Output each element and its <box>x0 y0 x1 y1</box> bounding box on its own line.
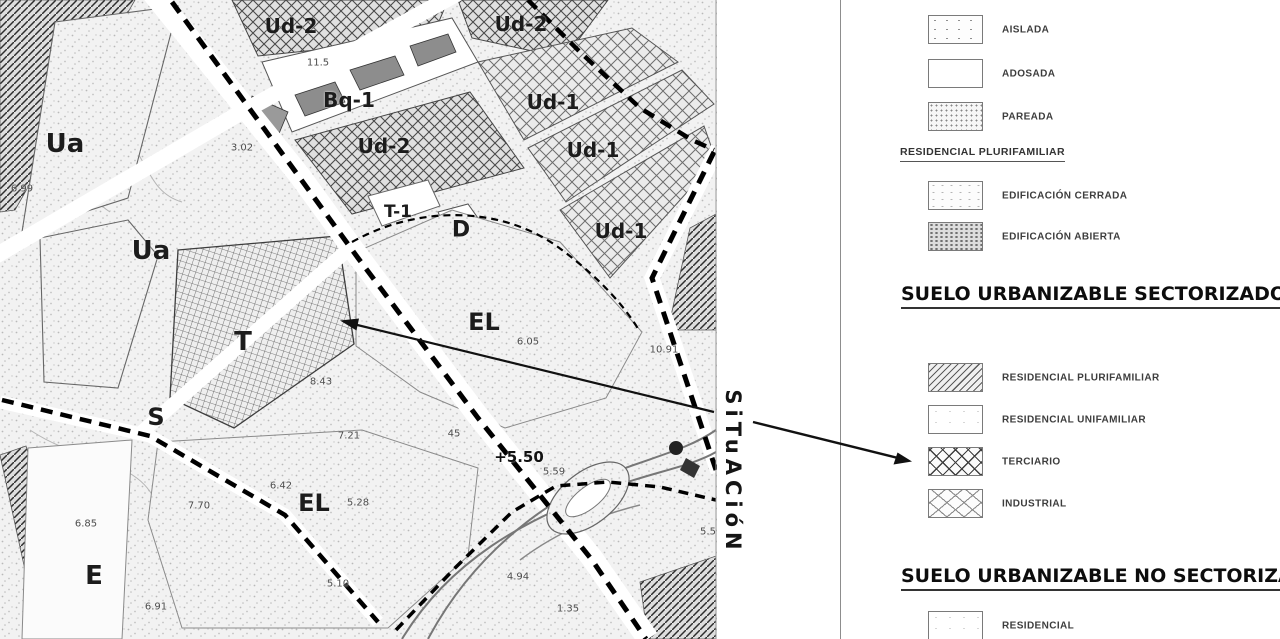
legend-heading-residencial-plurifamiliar: RESIDENCIAL PLURIFAMILIAR <box>900 146 1065 162</box>
legend-swatch-terciario <box>928 447 983 476</box>
legend-swatch-aislada <box>928 15 983 44</box>
legend-label: TERCIARIO <box>1002 457 1061 468</box>
legend-label: PAREADA <box>1002 112 1054 123</box>
legend-label: RESIDENCIAL UNIFAMILIAR <box>1002 415 1146 426</box>
legend-panel: AISLADA ADOSADA PAREADA RESIDENCIAL PLUR… <box>0 0 1280 639</box>
legend-swatch-residencial <box>928 611 983 639</box>
legend-label: AISLADA <box>1002 25 1049 36</box>
legend-swatch-industrial <box>928 489 983 518</box>
legend-swatch-edificacion-cerrada <box>928 181 983 210</box>
planning-sheet: Ua Ud-2 Ud-2 Bq-1 Ud-2 Ud-1 Ud-1 T-1 D U… <box>0 0 1280 639</box>
legend-label: ADOSADA <box>1002 69 1055 80</box>
legend-swatch-residencial-plurifamiliar <box>928 363 983 392</box>
legend-label: EDIFICACIÓN CERRADA <box>1002 191 1127 202</box>
legend-label: RESIDENCIAL <box>1002 621 1074 632</box>
legend-heading-suelo-urbanizable-no-sectorizado: SUELO URBANIZABLE NO SECTORIZADO <box>901 565 1280 591</box>
legend-heading-suelo-urbanizable-sectorizado: SUELO URBANIZABLE SECTORIZADO <box>901 283 1280 309</box>
legend-swatch-adosada <box>928 59 983 88</box>
legend-label: RESIDENCIAL PLURIFAMILIAR <box>1002 373 1160 384</box>
legend-swatch-edificacion-abierta <box>928 222 983 251</box>
legend-swatch-residencial-unifamiliar <box>928 405 983 434</box>
legend-swatch-pareada <box>928 102 983 131</box>
legend-label: EDIFICACIÓN ABIERTA <box>1002 232 1121 243</box>
legend-label: INDUSTRIAL <box>1002 499 1067 510</box>
